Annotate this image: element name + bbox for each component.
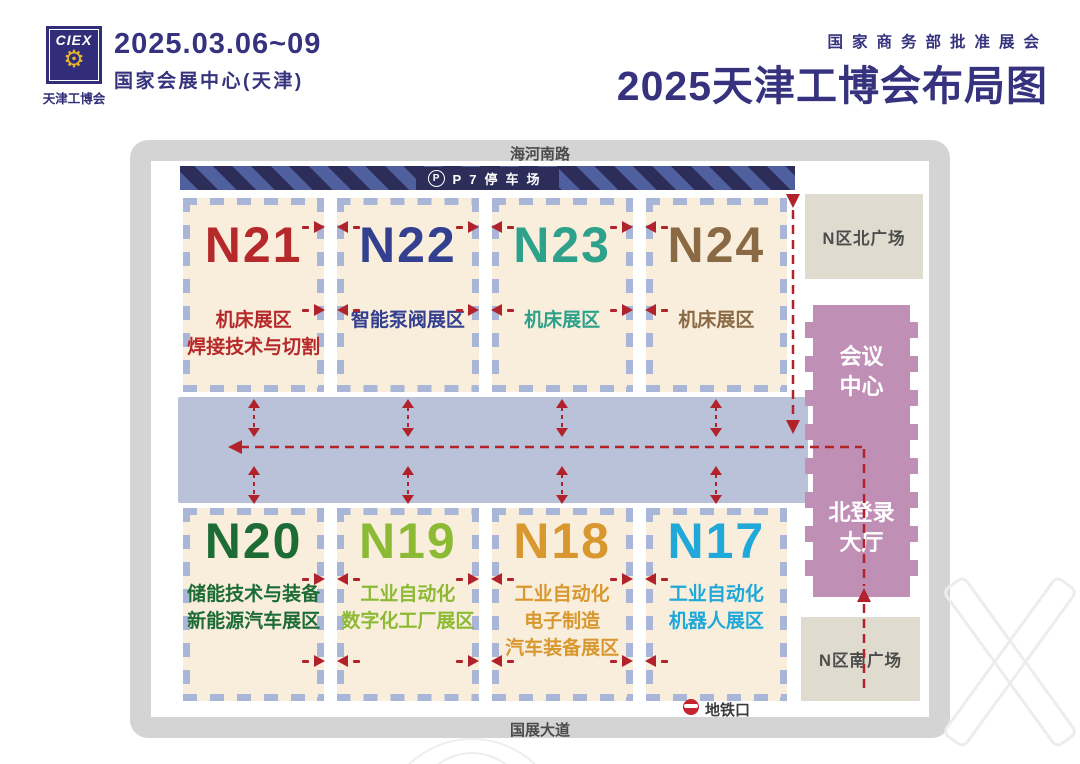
hall-n20: N20 储能技术与装备新能源汽车展区 <box>183 508 324 701</box>
event-dates: 2025.03.06~09 <box>114 28 321 61</box>
parking-strip-label: P P7停车场 <box>416 167 560 190</box>
central-corridor <box>178 397 808 503</box>
parking-strip: P P7停车场 <box>180 166 795 190</box>
hall-n19: N19 工业自动化数字化工厂展区 <box>337 508 478 701</box>
hall-desc: 工业自动化电子制造汽车装备展区 <box>505 581 619 662</box>
building-edge-notches <box>805 322 813 582</box>
watermark-circle <box>415 752 529 764</box>
venue-name: 国家会展中心(天津) <box>114 66 304 93</box>
ciex-logo-inner: CIEX ⚙ <box>49 29 99 81</box>
hall-n23: N23 机床展区 <box>492 198 633 392</box>
hall-name: N20 <box>205 514 303 569</box>
hall-name: N17 <box>668 514 766 569</box>
page-title: 2025天津工博会布局图 <box>617 52 1048 112</box>
road-north-label: 海河南路 <box>130 143 950 164</box>
gear-globe-icon: ⚙ <box>63 47 85 73</box>
hall-name: N18 <box>513 514 611 569</box>
watermark-x-bar <box>941 574 1079 749</box>
hall-desc: 智能泵阀展区 <box>351 307 465 334</box>
ciex-logo: CIEX ⚙ <box>46 26 102 84</box>
hall-desc: 工业自动化数字化工厂展区 <box>341 581 474 635</box>
hall-desc: 储能技术与装备新能源汽车展区 <box>187 581 320 635</box>
north-registration-hall-label: 北登录大厅 <box>813 498 910 558</box>
hall-row-south: N20 储能技术与装备新能源汽车展区 N19 工业自动化数字化工厂展区 N18 … <box>183 508 787 701</box>
plaza-north: N区北广场 <box>805 194 923 279</box>
hall-desc: 机床展区 <box>524 307 600 334</box>
hall-row-north: N21 机床展区焊接技术与切割 N22 智能泵阀展区 N23 机床展区 N24 … <box>183 198 787 392</box>
hall-desc: 机床展区焊接技术与切割 <box>187 307 320 361</box>
hall-desc: 工业自动化机器人展区 <box>669 581 764 635</box>
hall-name: N24 <box>668 218 766 273</box>
hall-n21: N21 机床展区焊接技术与切割 <box>183 198 324 392</box>
approval-note: 国家商务部批准展会 <box>827 30 1048 52</box>
hall-desc: 机床展区 <box>678 307 754 334</box>
metro-icon <box>683 699 699 715</box>
plaza-south: N区南广场 <box>801 617 920 701</box>
expo-layout-poster: CIEX ⚙ 天津工博会 2025.03.06~09 国家会展中心(天津) 国家… <box>0 0 1080 764</box>
hall-n18: N18 工业自动化电子制造汽车装备展区 <box>492 508 633 701</box>
watermark-x-bar <box>941 574 1079 749</box>
parking-icon: P <box>428 170 445 187</box>
hall-name: N23 <box>513 218 611 273</box>
watermark-circle <box>380 738 564 764</box>
building-edge-notches <box>910 322 918 582</box>
hall-name: N22 <box>359 218 457 273</box>
hall-n22: N22 智能泵阀展区 <box>337 198 478 392</box>
hall-name: N21 <box>205 218 303 273</box>
parking-label: P7停车场 <box>453 169 548 188</box>
conference-center-label: 会议中心 <box>813 342 910 402</box>
road-south-label: 国展大道 <box>130 719 950 740</box>
hall-n17: N17 工业自动化机器人展区 <box>646 508 787 701</box>
hall-name: N19 <box>359 514 457 569</box>
metro-label: 地铁口 <box>705 699 750 720</box>
logo-caption: 天津工博会 <box>36 88 112 107</box>
hall-n24: N24 机床展区 <box>646 198 787 392</box>
